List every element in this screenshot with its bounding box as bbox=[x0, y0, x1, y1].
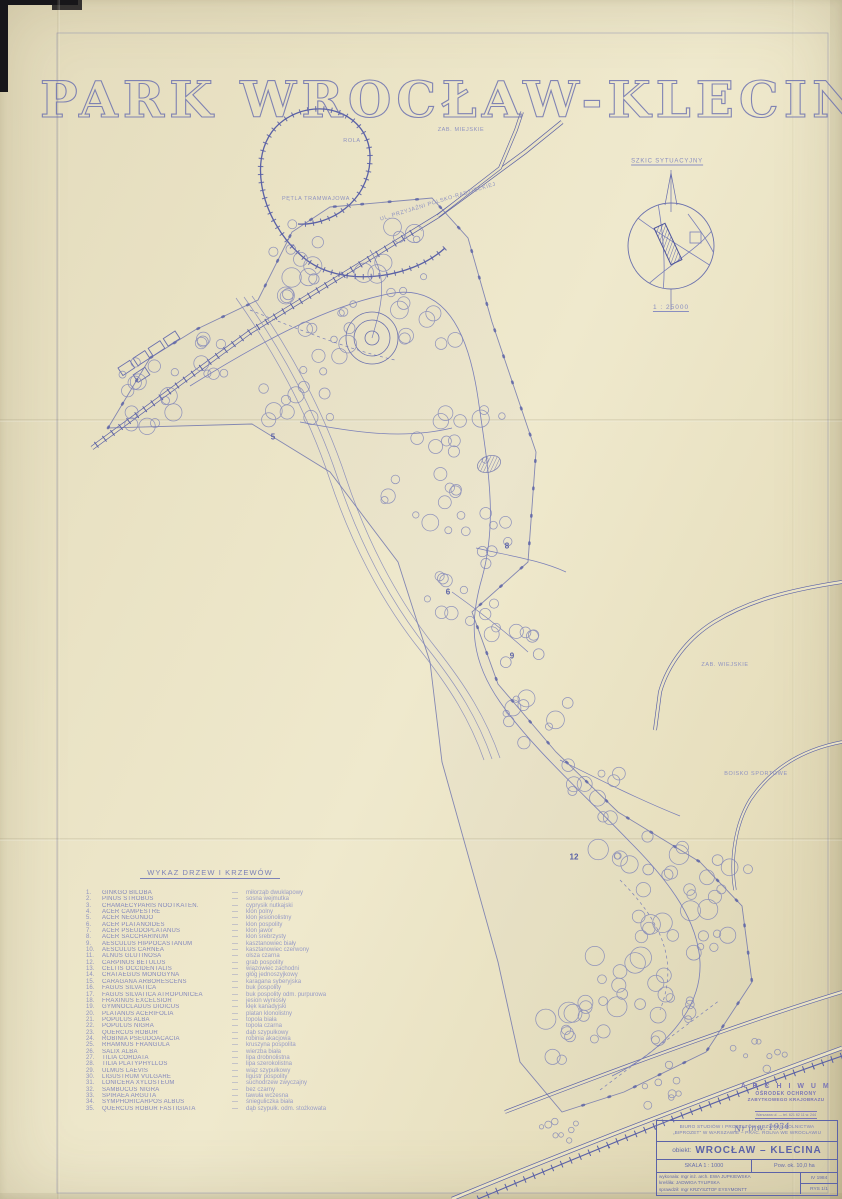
title-block-object: obiekt: WROCŁAW – KLECINA bbox=[657, 1142, 837, 1160]
legend-entry-latin-name: QUERCUS ROBUR FASTIGIATA bbox=[102, 1106, 232, 1112]
map-label: BOISKO SPORTOWE bbox=[724, 771, 788, 777]
legend-heading: WYKAZ DRZEW I KRZEWÓW bbox=[140, 868, 280, 879]
legend-entry-polish-name: dąb szypułk. odm. stożkowata bbox=[246, 1106, 386, 1112]
title-block-right-cells: IV 1984 RYS 1/1 bbox=[801, 1173, 837, 1194]
title-block: BIURO STUDIÓW I PROJEKTÓW ROZWOJU ROLNIC… bbox=[656, 1120, 838, 1196]
legend-entry-separator: — bbox=[232, 1106, 246, 1112]
tree-legend: 1.GINKGO BILOBA—miłorząb dwuklapowy2.PIN… bbox=[86, 890, 386, 1112]
checked-by: sprawdził: mgr KRZYSZTOF EYSYMONTT bbox=[659, 1187, 798, 1193]
map-point-marker: 5 bbox=[271, 433, 275, 442]
object-value: WROCŁAW – KLECINA bbox=[695, 1145, 821, 1156]
people-names: wykonała: mgr inż. arch. EWA JUPKIEWSKA … bbox=[657, 1173, 801, 1194]
date-value: IV 1984 bbox=[801, 1173, 837, 1184]
title-block-people-row: wykonała: mgr inż. arch. EWA JUPKIEWSKA … bbox=[657, 1173, 837, 1194]
org-line-2: „BIPROZET” W WARSZAWIE – PRAC. ROLNA WE … bbox=[657, 1130, 837, 1136]
map-label: ZAB. MIEJSKIE bbox=[438, 127, 485, 133]
map-point-marker: 6 bbox=[446, 588, 450, 597]
stamp-line: A R C H I W U M bbox=[728, 1083, 842, 1091]
legend-entry: 35.QUERCUS ROBUR FASTIGIATA—dąb szypułk.… bbox=[86, 1106, 386, 1112]
area-value: Pow. ok. 10,0 ha bbox=[752, 1160, 837, 1172]
map-label: ZAB. WIEJSKIE bbox=[701, 662, 748, 668]
inset-scale: 1 : 25000 bbox=[653, 304, 689, 312]
legend-entry-number: 35. bbox=[86, 1106, 102, 1112]
map-point-marker: 12 bbox=[570, 853, 579, 862]
map-point-marker: 8 bbox=[505, 542, 509, 551]
title-block-organization: BIURO STUDIÓW I PROJEKTÓW ROZWOJU ROLNIC… bbox=[657, 1121, 837, 1142]
title-block-scale-row: SKALA 1 : 1000 Pow. ok. 10,0 ha bbox=[657, 1160, 837, 1173]
plan-title: PARK WROCŁAW-KLECINA bbox=[40, 70, 802, 129]
scanned-plan-sheet: PARK WROCŁAW-KLECINA SZKIC SYTUACYJNY 1 … bbox=[0, 0, 842, 1199]
situational-inset bbox=[628, 170, 716, 310]
scale-value: SKALA 1 : 1000 bbox=[657, 1160, 752, 1172]
map-point-marker: 9 bbox=[510, 652, 514, 661]
map-label: PĘTLA TRAMWAJOWA bbox=[282, 196, 350, 202]
inset-title: SZKIC SYTUACYJNY bbox=[631, 159, 703, 166]
drawing-number: RYS 1/1 bbox=[801, 1184, 837, 1194]
object-label: obiekt: bbox=[672, 1147, 691, 1154]
map-label: ROLA bbox=[343, 138, 360, 144]
stamp-line: Warszawa ul. — tel. 621 62 11 w. 244 bbox=[755, 1111, 817, 1119]
